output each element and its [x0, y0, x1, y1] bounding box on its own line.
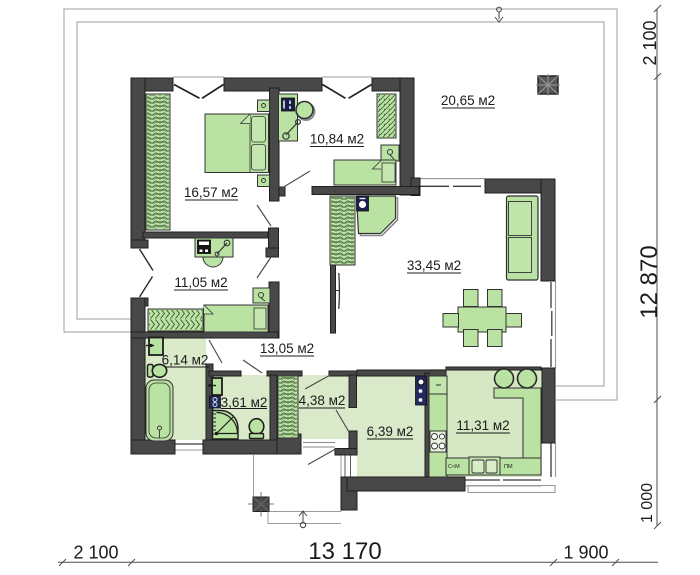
svg-text:11,05 м2: 11,05 м2 [174, 275, 227, 290]
svg-text:13 170: 13 170 [308, 538, 381, 565]
svg-text:6,39 м2: 6,39 м2 [367, 424, 414, 439]
svg-text:11,31 м2: 11,31 м2 [456, 418, 509, 433]
svg-text:20,65 м2: 20,65 м2 [441, 93, 495, 108]
svg-text:2 100: 2 100 [73, 543, 118, 563]
svg-text:1 900: 1 900 [563, 543, 608, 563]
svg-text:ПМ: ПМ [504, 464, 513, 470]
svg-text:33,45 м2: 33,45 м2 [407, 258, 461, 273]
svg-text:13,05 м2: 13,05 м2 [260, 341, 314, 356]
svg-text:2 100: 2 100 [640, 20, 660, 65]
svg-text:12 870: 12 870 [636, 245, 663, 318]
svg-text:10,84 м2: 10,84 м2 [310, 132, 364, 147]
svg-text:16,57 м2: 16,57 м2 [184, 185, 238, 200]
svg-text:С<М: С<М [448, 464, 460, 470]
svg-text:4,38 м2: 4,38 м2 [299, 393, 346, 408]
svg-text:6,14 м2: 6,14 м2 [162, 353, 209, 368]
svg-text:3,61 м2: 3,61 м2 [221, 395, 268, 410]
svg-text:1 000: 1 000 [639, 483, 656, 523]
